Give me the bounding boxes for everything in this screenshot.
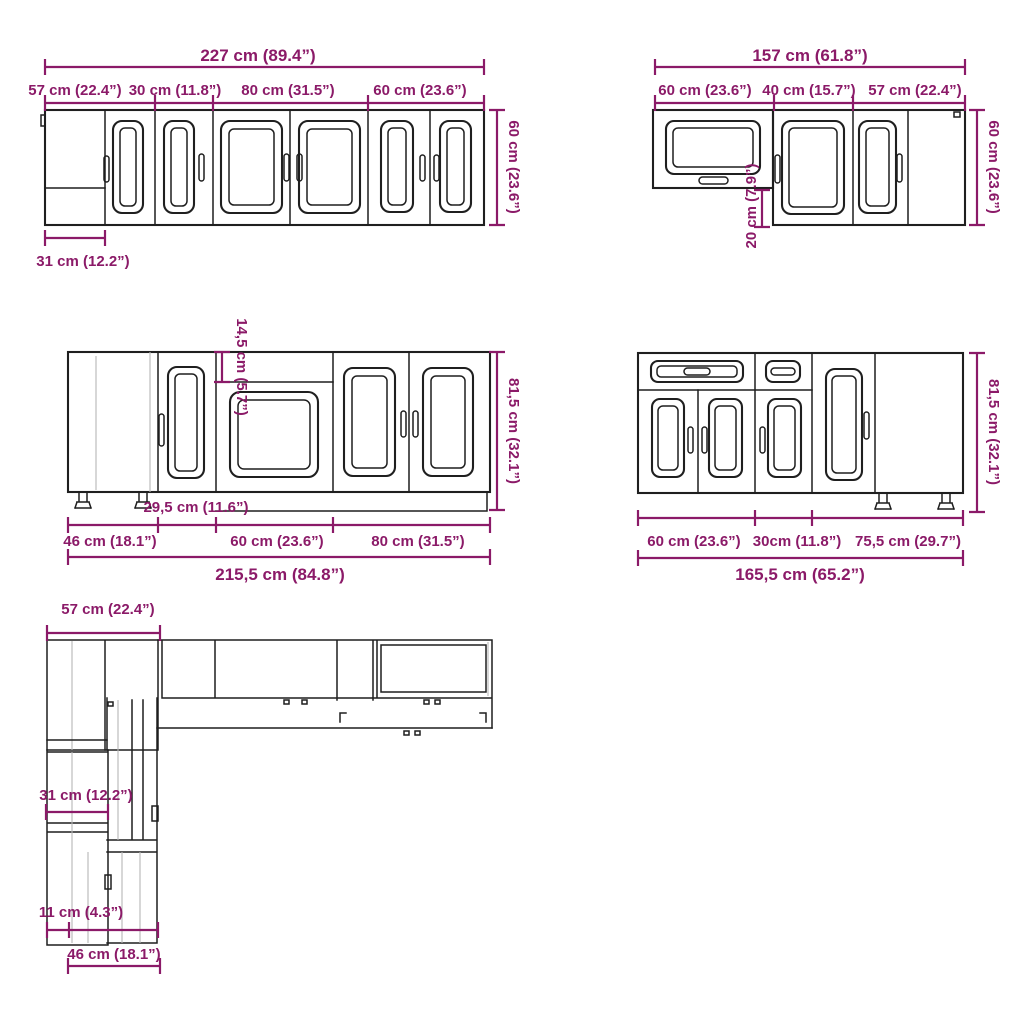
panel-inset bbox=[381, 645, 486, 692]
wall-left-depth-label: 31 cm (12.2”) bbox=[36, 253, 129, 270]
wall-left-seg3-label: 80 cm (31.5”) bbox=[241, 82, 334, 99]
plan-bottom-width-label: 46 cm (18.1”) bbox=[67, 946, 160, 963]
kitchen-cabinet-dimension-diagram: 227 cm (89.4”) 57 cm (22.4”) 30 cm (11.8… bbox=[0, 0, 1024, 1024]
hinge-mark bbox=[41, 115, 45, 126]
wall-right-total-width-label: 157 cm (61.8”) bbox=[752, 46, 867, 65]
corner-brackets bbox=[340, 713, 486, 722]
plinth bbox=[216, 492, 487, 511]
cabinet-leg bbox=[75, 492, 91, 508]
cabinet-door bbox=[159, 367, 204, 478]
base-left-gap-label: 14,5 cm (5.7”) bbox=[233, 318, 250, 416]
figure-corner-plan-view: 57 cm (22.4”) 31 cm (12.2”) 11 cm (4.3”)… bbox=[39, 601, 492, 974]
cabinet-door bbox=[381, 121, 413, 212]
base-right-dimensions: 60 cm (23.6”) 30cm (11.8”) 75,5 cm (29.7… bbox=[638, 353, 1002, 584]
base-left-seg2-label: 60 cm (23.6”) bbox=[230, 533, 323, 550]
wall-right-seg3-label: 57 cm (22.4”) bbox=[868, 82, 961, 99]
wall-left-height-label: 60 cm (23.6”) bbox=[505, 120, 522, 213]
door-handle bbox=[159, 414, 164, 446]
wall-left-total-width-label: 227 cm (89.4”) bbox=[200, 46, 315, 65]
cabinet-door bbox=[299, 121, 360, 213]
cabinet-drawer bbox=[651, 361, 743, 382]
figure-base-cabinets-right: 60 cm (23.6”) 30cm (11.8”) 75,5 cm (29.7… bbox=[638, 353, 1002, 584]
cabinet-door bbox=[164, 121, 194, 213]
base-left-cabinet-drawing bbox=[68, 352, 490, 511]
base-right-height-label: 81,5 cm (32.1”) bbox=[985, 379, 1002, 485]
base-left-height-label: 81,5 cm (32.1”) bbox=[505, 378, 522, 484]
wall-right-height-label: 60 cm (23.6”) bbox=[985, 120, 1002, 213]
base-right-seg3-label: 75,5 cm (29.7”) bbox=[855, 533, 961, 550]
cabinet-leg bbox=[938, 493, 954, 509]
door-handle bbox=[699, 177, 728, 184]
cabinet-door bbox=[423, 368, 473, 476]
cabinet-door bbox=[113, 121, 143, 213]
drawer-handle bbox=[684, 368, 710, 375]
wall-right-seg1-label: 60 cm (23.6”) bbox=[658, 82, 751, 99]
base-left-dimensions: 14,5 cm (5.7”) 29,5 cm (11.6”) 46 cm (18… bbox=[63, 318, 522, 584]
base-right-seg2-label: 30cm (11.8”) bbox=[753, 533, 841, 550]
base-left-seg1-label: 46 cm (18.1”) bbox=[63, 533, 156, 550]
cabinet-drawer bbox=[766, 361, 800, 382]
cabinet-door bbox=[768, 399, 801, 477]
wall-right-cabinet-drawing bbox=[653, 110, 965, 225]
wall-right-seg2-label: 40 cm (15.7”) bbox=[762, 82, 855, 99]
door-handle bbox=[775, 155, 780, 183]
hinge-mark bbox=[954, 112, 960, 117]
base-left-seg3-label: 80 cm (31.5”) bbox=[371, 533, 464, 550]
door-handle bbox=[864, 412, 869, 439]
cabinet-door bbox=[709, 399, 742, 477]
base-left-total-width-label: 215,5 cm (84.8”) bbox=[215, 565, 344, 584]
plan-mid-width-label: 31 cm (12.2”) bbox=[39, 787, 132, 804]
drawer-handle bbox=[771, 368, 795, 375]
cabinet-door bbox=[859, 121, 902, 213]
dimension-diagram-page: 227 cm (89.4”) 57 cm (22.4”) 30 cm (11.8… bbox=[0, 0, 1024, 1024]
wall-left-cabinet-drawing bbox=[41, 110, 484, 225]
cabinet-door bbox=[652, 399, 684, 477]
base-left-inner-width-label: 29,5 cm (11.6”) bbox=[143, 499, 248, 516]
base-right-total-width-label: 165,5 cm (65.2”) bbox=[735, 565, 864, 584]
plan-top-width-label: 57 cm (22.4”) bbox=[61, 601, 154, 618]
wall-right-gap-label: 20 cm (7.9”) bbox=[743, 163, 760, 248]
figure-base-cabinets-left: 14,5 cm (5.7”) 29,5 cm (11.6”) 46 cm (18… bbox=[63, 318, 522, 584]
figure-wall-cabinets-right: 157 cm (61.8”) 60 cm (23.6”) 40 cm (15.7… bbox=[653, 46, 1002, 249]
wall-right-dimensions: 157 cm (61.8”) 60 cm (23.6”) 40 cm (15.7… bbox=[655, 46, 1002, 249]
cabinet-door bbox=[775, 121, 844, 214]
cabinet-leg bbox=[875, 493, 891, 509]
wall-left-dimensions: 227 cm (89.4”) 57 cm (22.4”) 30 cm (11.8… bbox=[28, 46, 522, 270]
wall-left-seg1-label: 57 cm (22.4”) bbox=[28, 82, 121, 99]
cabinet-door bbox=[221, 121, 282, 213]
figure-wall-cabinets-left: 227 cm (89.4”) 57 cm (22.4”) 30 cm (11.8… bbox=[28, 46, 522, 270]
door-handle bbox=[897, 154, 902, 182]
base-right-cabinet-drawing bbox=[638, 353, 963, 509]
base-right-seg1-label: 60 cm (23.6”) bbox=[647, 533, 740, 550]
door-handles bbox=[688, 427, 765, 453]
plan-small-width-label: 11 cm (4.3”) bbox=[39, 904, 123, 921]
cabinet-door bbox=[344, 368, 395, 476]
wall-left-seg4-label: 60 cm (23.6”) bbox=[373, 82, 466, 99]
cabinet-door bbox=[440, 121, 471, 212]
wall-left-seg2-label: 30 cm (11.8”) bbox=[129, 82, 222, 99]
cabinet-door bbox=[826, 369, 869, 480]
